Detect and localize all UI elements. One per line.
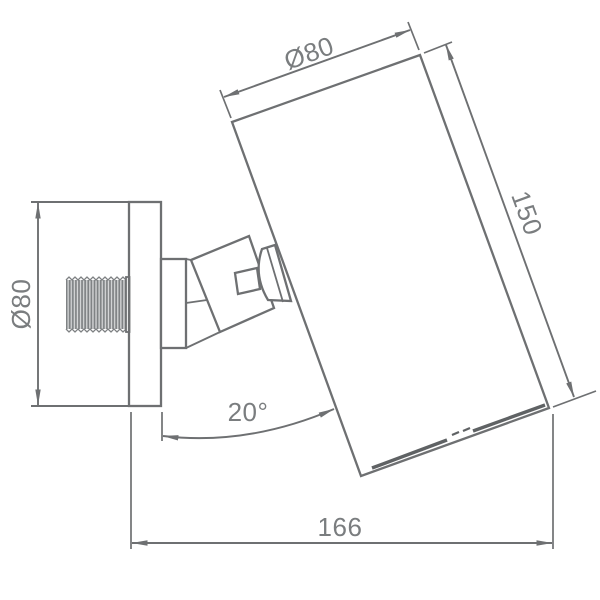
head-diameter-dim-label: Ø80: [280, 30, 338, 76]
locking-tab: [235, 268, 260, 294]
swivel-joint: [161, 236, 291, 348]
tilt-angle-dim-label: 20°: [228, 397, 269, 427]
dimension-overall-projection: 166: [131, 412, 553, 549]
knuckle-fold-line: [186, 300, 207, 303]
wall-plate-assembly: [31, 202, 161, 406]
thread-stub: [66, 280, 126, 329]
arm-knuckle-bottom-link: [186, 332, 220, 348]
head-diameter-ext-line-right: [408, 22, 419, 50]
head-length-ext-line-bottom: [553, 391, 596, 407]
overall-projection-dim-label: 166: [318, 512, 363, 542]
dimension-flange-diameter: Ø80: [6, 203, 38, 405]
technical-drawing: Ø80 Ø80 150 166 20°: [0, 0, 600, 600]
thread-shank: [126, 277, 130, 332]
wall-plate: [129, 202, 161, 406]
flange-diameter-dim-label: Ø80: [6, 279, 36, 330]
thread-crest-top: [66, 277, 126, 280]
dimension-tilt-angle: 20°: [162, 397, 334, 441]
drawing-canvas: Ø80 Ø80 150 166 20°: [0, 0, 600, 600]
mounting-arm: [161, 259, 186, 348]
head-length-dim-label: 150: [505, 187, 549, 239]
thread-crest-bottom: [66, 329, 126, 332]
